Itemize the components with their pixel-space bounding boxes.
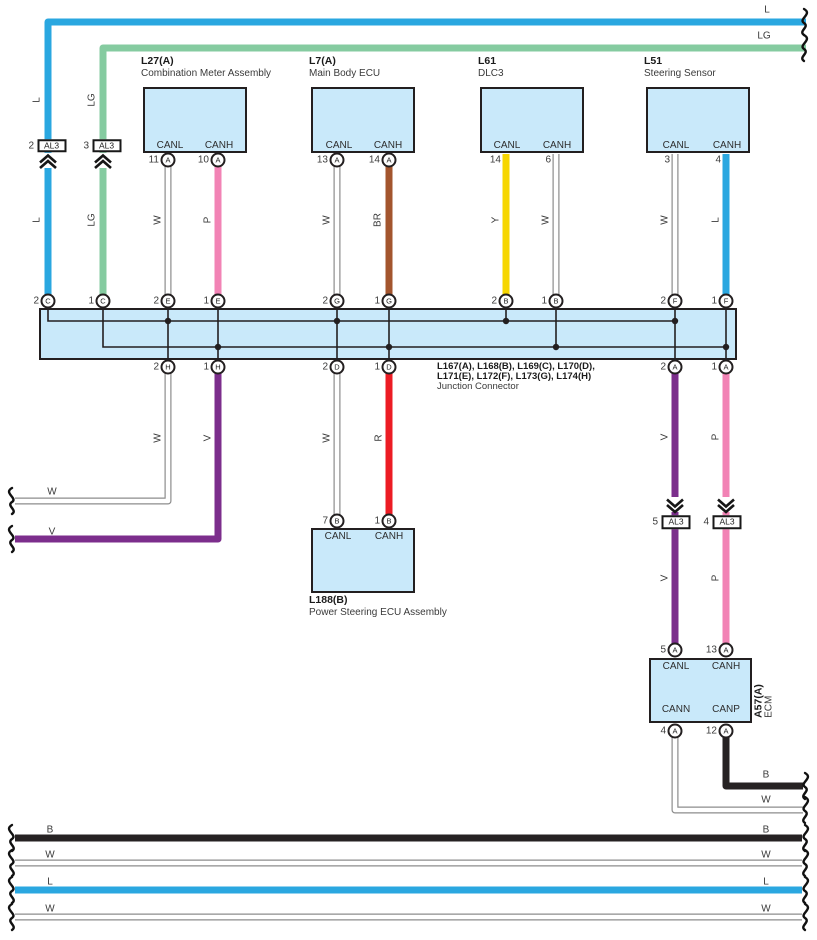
junction-pin-number: 2 bbox=[322, 362, 328, 373]
wire-color-label: V bbox=[660, 434, 671, 441]
junction-pin-letter: H bbox=[211, 360, 226, 375]
component-name: ECM bbox=[764, 684, 775, 718]
junction-pin-letter: E bbox=[161, 294, 176, 309]
junction-connector-label: L167(A), L168(B), L169(C), L170(D), L171… bbox=[437, 362, 595, 391]
ecm-canh-label: CANH bbox=[712, 661, 740, 672]
pin-number: 3 bbox=[664, 155, 670, 166]
pin-number: 10 bbox=[198, 154, 209, 165]
component-name: Main Body ECU bbox=[309, 68, 380, 80]
al3-pin-number: 5 bbox=[652, 517, 658, 528]
l188-canh-label: CANH bbox=[375, 531, 403, 542]
junction-pin-number: 1 bbox=[88, 296, 94, 307]
pin-number: 1 bbox=[374, 516, 380, 527]
junction-pin-letter: G bbox=[382, 294, 397, 309]
l7-canh-label: CANH bbox=[374, 140, 402, 151]
al3-connector: AL3 bbox=[662, 515, 691, 529]
wire-color-label: L bbox=[32, 97, 43, 103]
pin-number: 4 bbox=[660, 726, 666, 737]
component-name: Steering Sensor bbox=[644, 68, 716, 80]
dlc3-title: L61 DLC3 bbox=[478, 56, 504, 79]
junction-pin-letter: B bbox=[499, 294, 514, 309]
junction-pin-letter: H bbox=[161, 360, 176, 375]
pin-number: 5 bbox=[660, 645, 666, 656]
junction-pin-letter: B bbox=[549, 294, 564, 309]
l27-canl-label: CANL bbox=[157, 140, 184, 151]
pin-number: 13 bbox=[706, 645, 717, 656]
wire-color-label: V bbox=[660, 575, 671, 582]
wire-color-label: V bbox=[203, 435, 214, 442]
l61-canl-label: CANL bbox=[494, 140, 521, 151]
junction-pin-number: 1 bbox=[374, 362, 380, 373]
component-code: L51 bbox=[644, 56, 716, 68]
pin-connector-letter: A bbox=[211, 152, 226, 167]
wire-color-label: L bbox=[711, 217, 722, 223]
wire-color-label: LG bbox=[87, 93, 98, 106]
connector-pass-arrow-icons-top bbox=[37, 153, 114, 168]
al3-connector: AL3 bbox=[92, 139, 121, 153]
junction-pin-letter: F bbox=[719, 294, 734, 309]
component-code: L61 bbox=[478, 56, 504, 68]
junction-pin-number: 2 bbox=[491, 296, 497, 307]
bottom-bus-label: W bbox=[761, 904, 770, 915]
pin-number: 12 bbox=[706, 726, 717, 737]
ecm-title: A57(A) ECM bbox=[754, 684, 775, 718]
pin-connector-letter: B bbox=[330, 514, 345, 529]
junction-pin-number: 2 bbox=[153, 296, 159, 307]
wire-color-label: W bbox=[660, 215, 671, 224]
al3-connector: AL3 bbox=[713, 515, 742, 529]
wire-violet-1h-exit bbox=[15, 366, 218, 539]
junction-pin-letter: A bbox=[719, 360, 734, 375]
bottom-bus-label: B bbox=[47, 825, 54, 836]
component-name: Combination Meter Assembly bbox=[141, 68, 271, 80]
junction-pin-letter: D bbox=[382, 360, 397, 375]
ecm-exit-label-b: B bbox=[763, 770, 770, 781]
component-code: L188(B) bbox=[309, 595, 447, 607]
junction-pin-letter: G bbox=[330, 294, 345, 309]
junction-bus-junction-dots bbox=[165, 318, 729, 350]
ecm-exit-label-w: W bbox=[761, 795, 770, 806]
junction-pin-letter: C bbox=[96, 294, 111, 309]
ecm-canl-label: CANL bbox=[663, 661, 690, 672]
l61-canh-label: CANH bbox=[543, 140, 571, 151]
pin-number: 6 bbox=[545, 155, 551, 166]
wire-color-label: Y bbox=[491, 217, 502, 224]
l51-canh-label: CANH bbox=[713, 140, 741, 151]
pin-connector-letter: A bbox=[668, 724, 683, 739]
wire-color-label: R bbox=[374, 434, 385, 441]
pin-connector-letter: A bbox=[719, 724, 734, 739]
top-bus-label-l: L bbox=[764, 5, 770, 16]
component-name: DLC3 bbox=[478, 68, 504, 80]
pin-connector-letter: B bbox=[382, 514, 397, 529]
main-body-ecu-title: L7(A) Main Body ECU bbox=[309, 56, 380, 79]
bottom-bus-label: W bbox=[45, 850, 54, 861]
ecm-canp-label: CANP bbox=[712, 704, 740, 715]
junction-pin-letter: E bbox=[211, 294, 226, 309]
junction-pin-number: 2 bbox=[660, 296, 666, 307]
junction-pin-letter: C bbox=[41, 294, 56, 309]
wire-color-label: P bbox=[203, 217, 214, 224]
wire-color-label: P bbox=[711, 434, 722, 441]
left-exit-label-w: W bbox=[47, 487, 56, 498]
bottom-bus-label: W bbox=[761, 850, 770, 861]
combination-meter-title: L27(A) Combination Meter Assembly bbox=[141, 56, 271, 79]
wire-color-label: LG bbox=[87, 213, 98, 226]
al3-pin-number: 4 bbox=[703, 517, 709, 528]
junction-pin-letter: D bbox=[330, 360, 345, 375]
wire-color-label: L bbox=[32, 217, 43, 223]
steering-sensor-title: L51 Steering Sensor bbox=[644, 56, 716, 79]
pin-connector-letter: A bbox=[719, 643, 734, 658]
wire-color-label: BR bbox=[373, 213, 384, 227]
pin-number: 14 bbox=[369, 154, 380, 165]
wire-color-label: W bbox=[541, 215, 552, 224]
junction-pin-number: 1 bbox=[711, 362, 717, 373]
left-exit-label-v: V bbox=[49, 527, 56, 538]
l7-canl-label: CANL bbox=[326, 140, 353, 151]
l51-canl-label: CANL bbox=[663, 140, 690, 151]
pin-number: 14 bbox=[490, 155, 501, 166]
al3-pin-number: 2 bbox=[28, 140, 34, 151]
wire-color-label: W bbox=[153, 433, 164, 442]
pin-connector-letter: A bbox=[668, 643, 683, 658]
wire-layer bbox=[0, 0, 817, 940]
wire-color-label: W bbox=[153, 215, 164, 224]
junction-pin-number: 1 bbox=[203, 296, 209, 307]
junction-internal-buses bbox=[48, 308, 726, 360]
pin-number: 11 bbox=[149, 154, 159, 165]
al3-pin-number: 3 bbox=[83, 140, 89, 151]
l188-canl-label: CANL bbox=[325, 531, 352, 542]
bottom-bus-label: L bbox=[763, 877, 769, 888]
wire-green-top-bus bbox=[103, 48, 806, 302]
junction-pin-number: 2 bbox=[33, 296, 39, 307]
wiring-diagram-canvas: L27(A) Combination Meter Assembly L7(A) … bbox=[0, 0, 817, 940]
junction-pin-number: 1 bbox=[374, 296, 380, 307]
al3-connector: AL3 bbox=[37, 139, 66, 153]
l27-canh-label: CANH bbox=[205, 140, 233, 151]
junction-pin-number: 1 bbox=[541, 296, 547, 307]
wire-color-label: W bbox=[322, 215, 333, 224]
pin-connector-letter: A bbox=[161, 152, 176, 167]
junction-pin-letter: A bbox=[668, 360, 683, 375]
wire-color-label: W bbox=[322, 433, 333, 442]
pin-number: 13 bbox=[317, 154, 328, 165]
ecm-cann-label: CANN bbox=[662, 704, 690, 715]
junction-pin-number: 2 bbox=[153, 362, 159, 373]
pin-connector-letter: A bbox=[330, 152, 345, 167]
junction-pin-number: 2 bbox=[322, 296, 328, 307]
connector-pass-arrow-icons-right bbox=[664, 497, 737, 512]
wire-color-label: P bbox=[711, 575, 722, 582]
junction-pin-number: 1 bbox=[203, 362, 209, 373]
pin-number: 7 bbox=[322, 516, 328, 527]
pin-number: 4 bbox=[715, 155, 721, 166]
junction-pin-number: 1 bbox=[711, 296, 717, 307]
junction-pin-letter: F bbox=[668, 294, 683, 309]
junction-pin-number: 2 bbox=[660, 362, 666, 373]
bottom-bus-label: L bbox=[47, 877, 53, 888]
pin-connector-letter: A bbox=[382, 152, 397, 167]
bottom-bus-label: W bbox=[45, 904, 54, 915]
bottom-bus-label: B bbox=[763, 825, 770, 836]
component-code: L7(A) bbox=[309, 56, 380, 68]
component-code: A57(A) bbox=[754, 684, 765, 718]
top-bus-label-lg: LG bbox=[757, 31, 770, 42]
power-steering-ecu-title: L188(B) Power Steering ECU Assembly bbox=[309, 595, 447, 618]
component-code: L27(A) bbox=[141, 56, 271, 68]
component-name: Power Steering ECU Assembly bbox=[309, 607, 447, 619]
